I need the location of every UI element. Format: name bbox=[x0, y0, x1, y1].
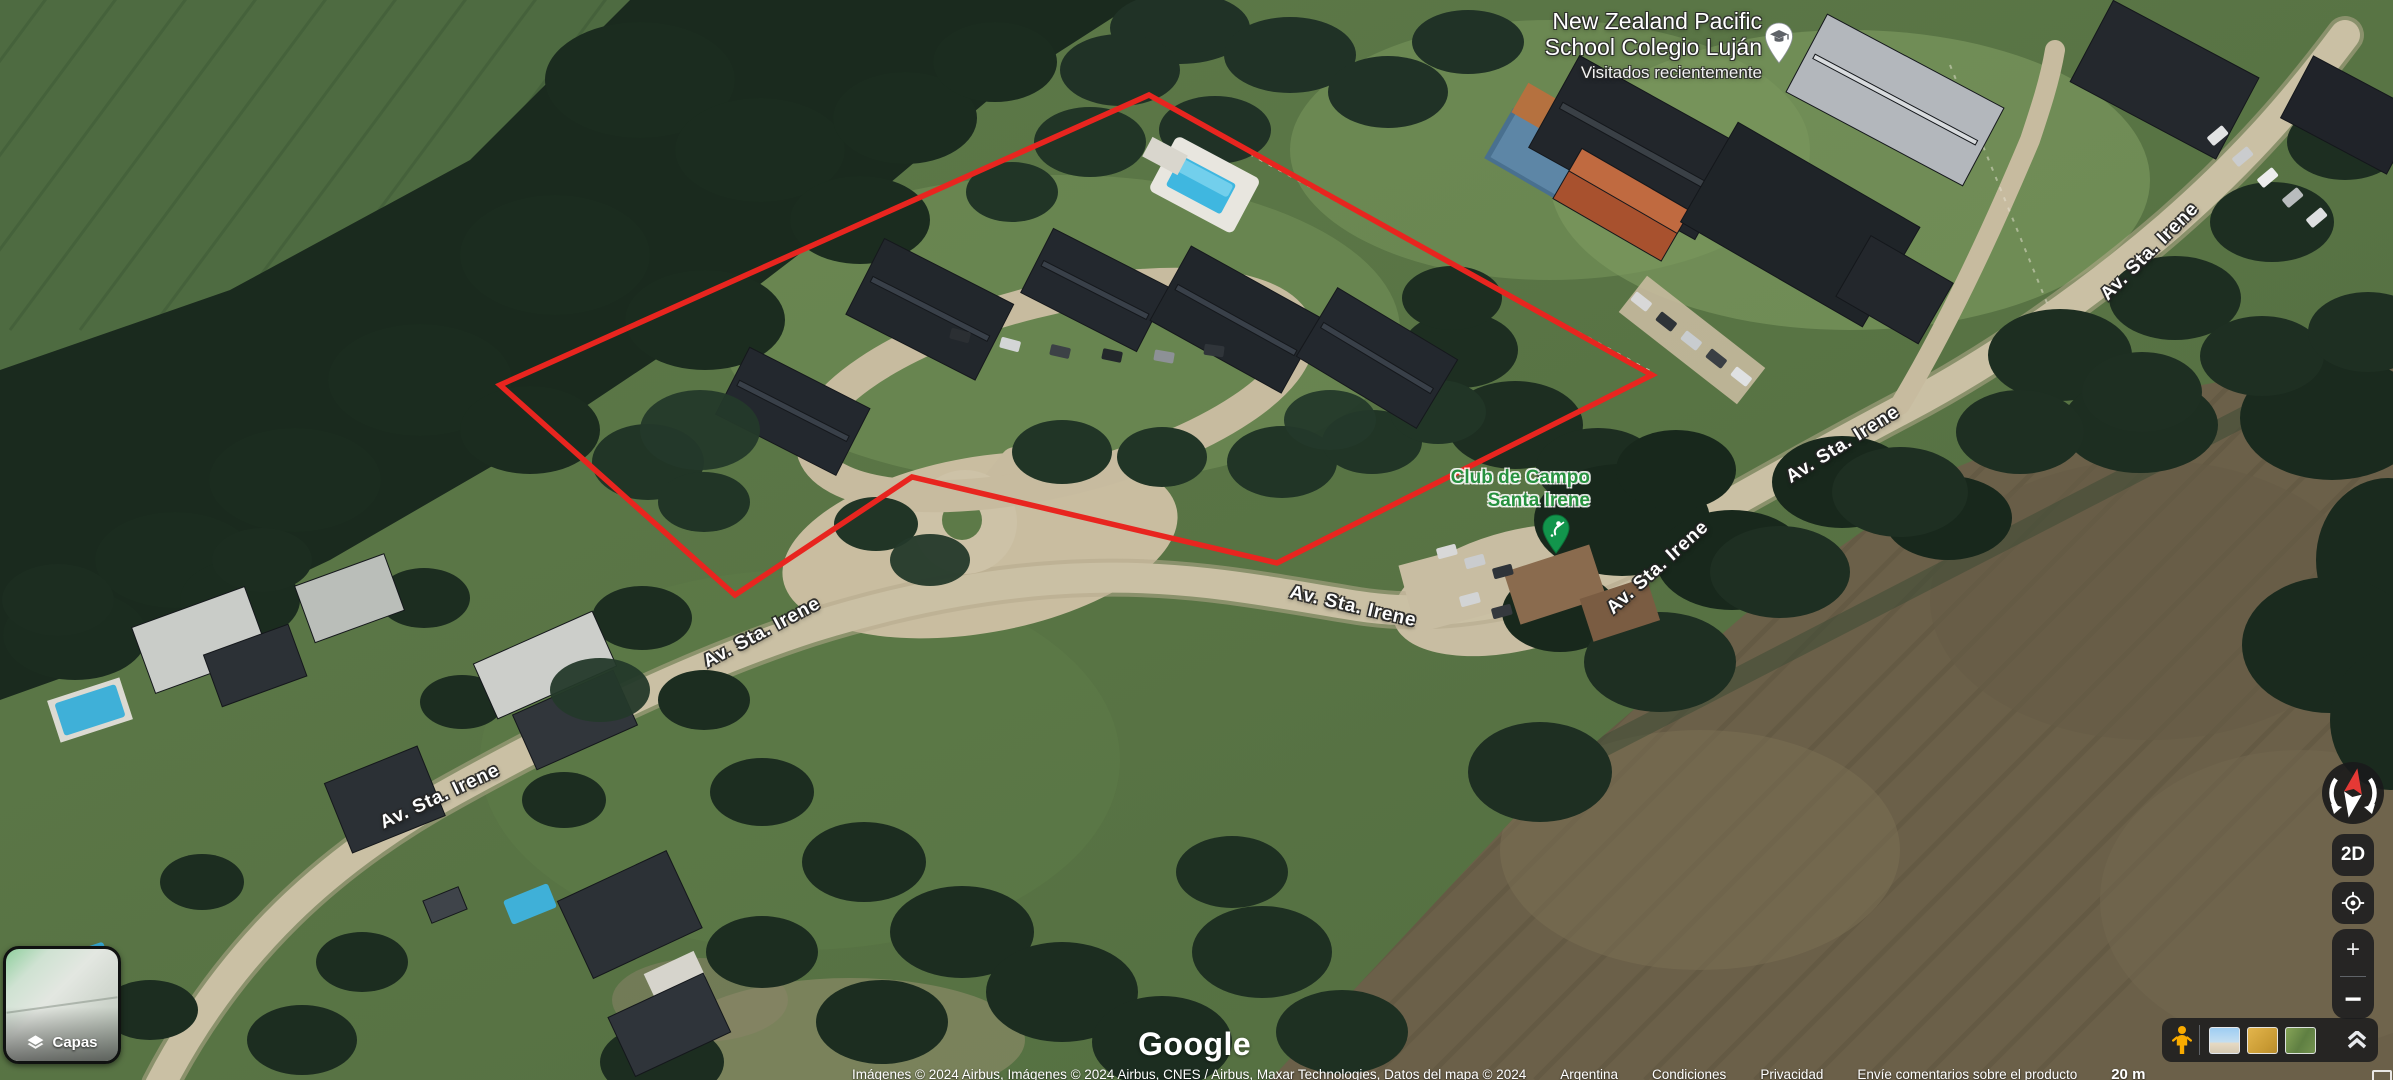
imagery-selector-bar bbox=[2162, 1018, 2378, 1062]
2d-view-button[interactable]: 2D bbox=[2332, 834, 2374, 876]
imagery-attribution: Imágenes © 2024 Airbus, Imágenes © 2024 … bbox=[852, 1067, 1526, 1080]
poi-school-name-line1: New Zealand Pacific bbox=[1500, 8, 1762, 34]
school-pin-icon[interactable] bbox=[1764, 22, 1794, 64]
zoom-divider bbox=[2340, 976, 2366, 977]
compass-control[interactable] bbox=[2320, 760, 2386, 826]
google-logo[interactable]: Google bbox=[1138, 1026, 1251, 1063]
footer-link-privacy[interactable]: Privacidad bbox=[1760, 1067, 1823, 1080]
poi-club-name-line1: Club de Campo bbox=[1430, 466, 1590, 489]
zoom-out-button[interactable]: − bbox=[2344, 985, 2362, 1015]
imagery-thumbnail-streetview[interactable] bbox=[2209, 1027, 2240, 1054]
footer-link-region[interactable]: Argentina bbox=[1560, 1067, 1618, 1080]
satellite-imagery bbox=[0, 0, 2393, 1080]
google-earth-view: { "poi": { "school": { "line1": "New Zea… bbox=[0, 0, 2393, 1080]
footer-bar: Imágenes © 2024 Airbus, Imágenes © 2024 … bbox=[852, 1066, 2145, 1080]
layers-icon bbox=[26, 1033, 45, 1052]
imagery-thumbnail-satellite[interactable] bbox=[2285, 1027, 2316, 1054]
golf-pin-icon[interactable] bbox=[1541, 514, 1571, 554]
pegman-icon[interactable] bbox=[2172, 1025, 2192, 1055]
zoom-in-button[interactable]: + bbox=[2346, 933, 2360, 967]
layers-button-label: Capas bbox=[52, 1034, 97, 1051]
map-scale-label: 20 m bbox=[2111, 1066, 2145, 1080]
poi-club-name-line2: Santa Irene bbox=[1430, 489, 1590, 512]
footer-link-terms[interactable]: Condiciones bbox=[1652, 1067, 1726, 1080]
poi-label-club[interactable]: Club de Campo Santa Irene bbox=[1430, 466, 1590, 512]
footer-link-feedback[interactable]: Envíe comentarios sobre el producto bbox=[1857, 1067, 2077, 1080]
zoom-control: + − bbox=[2332, 929, 2374, 1019]
layers-button[interactable]: Capas bbox=[3, 946, 121, 1064]
2d-view-label: 2D bbox=[2341, 844, 2365, 866]
my-location-icon bbox=[2340, 890, 2366, 916]
keyboard-shortcuts-icon[interactable] bbox=[2372, 1070, 2392, 1080]
poi-school-visited-note: Visitados recientemente bbox=[1500, 63, 1762, 83]
imagery-bar-divider bbox=[2199, 1025, 2200, 1055]
my-location-button[interactable] bbox=[2332, 882, 2374, 924]
imagery-thumbnail-terrain[interactable] bbox=[2247, 1027, 2278, 1054]
poi-label-school[interactable]: New Zealand Pacific School Colegio Luján… bbox=[1500, 8, 1762, 83]
poi-school-name-line2: School Colegio Luján bbox=[1500, 34, 1762, 60]
collapse-chevrons-icon[interactable] bbox=[2346, 1031, 2368, 1049]
